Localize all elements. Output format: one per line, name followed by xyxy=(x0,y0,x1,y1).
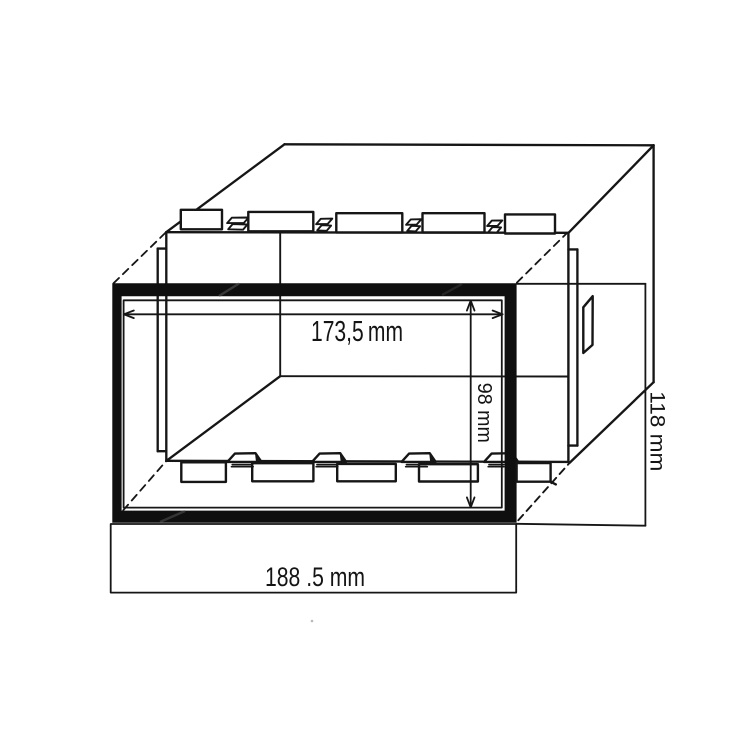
svg-text:188 .5 mm: 188 .5 mm xyxy=(265,562,365,592)
svg-text:98 mm: 98 mm xyxy=(473,383,495,443)
svg-text:173,5 mm: 173,5 mm xyxy=(311,316,403,348)
svg-text:118 mm: 118 mm xyxy=(646,391,670,471)
